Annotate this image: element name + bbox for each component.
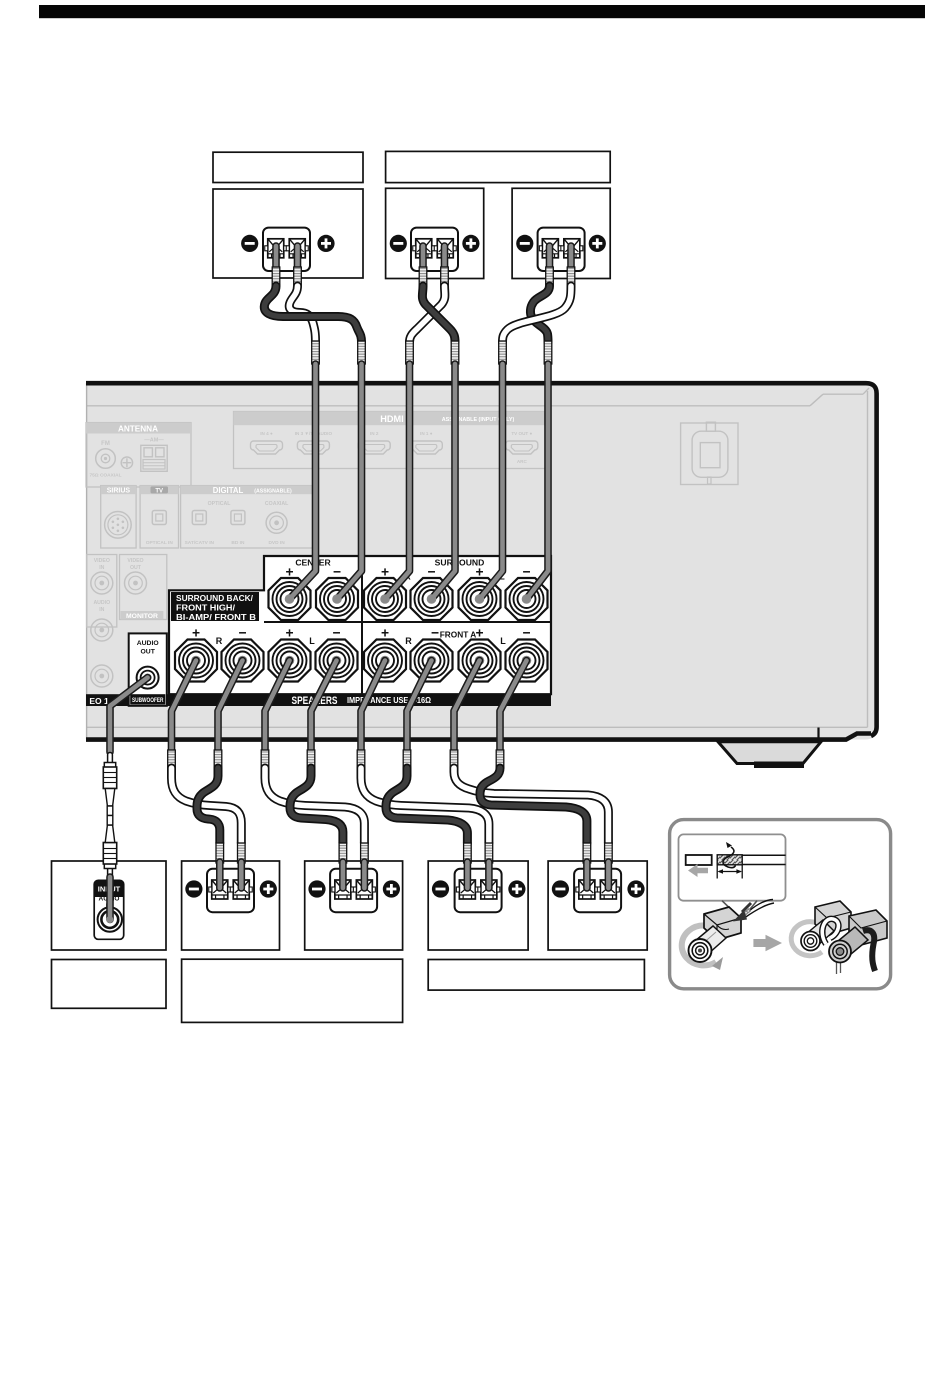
svg-text:+: + [381, 565, 389, 580]
svg-text:OUT: OUT [130, 565, 142, 571]
svg-text:IN: IN [99, 565, 104, 571]
svg-text:MONITOR: MONITOR [126, 613, 158, 620]
svg-text:IMPEDANCE USE 8-16Ω: IMPEDANCE USE 8-16Ω [347, 695, 431, 705]
svg-text:−: − [427, 565, 435, 580]
svg-text:R: R [405, 636, 412, 646]
svg-text:OPTICAL IN: OPTICAL IN [146, 540, 174, 546]
svg-text:VIDEO: VIDEO [94, 558, 110, 564]
svg-text:SUBWOOFER: SUBWOOFER [132, 697, 164, 704]
svg-text:AUDIO: AUDIO [137, 640, 159, 647]
svg-text:SAT/CATV IN: SAT/CATV IN [185, 540, 215, 546]
svg-text:IN 1 ●: IN 1 ● [420, 431, 433, 436]
svg-text:(ASSIGNABLE): (ASSIGNABLE) [254, 489, 292, 495]
svg-text:+: + [475, 626, 483, 641]
svg-text:+: + [381, 626, 389, 641]
svg-text:IN: IN [99, 607, 104, 613]
svg-text:TV OUT ●: TV OUT ● [511, 431, 532, 436]
svg-text:−: − [332, 626, 340, 641]
svg-text:HDMI: HDMI [380, 414, 403, 424]
svg-text:−: − [333, 565, 341, 580]
svg-text:SURROUND BACK/: SURROUND BACK/ [176, 594, 254, 603]
svg-text:IN 4 ●: IN 4 ● [260, 431, 273, 436]
svg-text:ARC: ARC [517, 459, 528, 464]
svg-text:75Ω COAXIAL: 75Ω COAXIAL [89, 473, 121, 479]
svg-text:DIGITAL: DIGITAL [213, 486, 244, 495]
svg-text:OPTICAL: OPTICAL [208, 501, 232, 507]
svg-text:R: R [216, 636, 223, 646]
svg-text:AUDIO: AUDIO [93, 600, 110, 606]
svg-text:EO 1: EO 1 [89, 696, 109, 706]
svg-text:−: − [238, 626, 246, 641]
svg-text:+: + [285, 626, 293, 641]
svg-text:IN 2: IN 2 [370, 431, 379, 436]
svg-text:VIDEO: VIDEO [127, 558, 143, 564]
svg-text:−: − [522, 626, 530, 641]
svg-text:COAXIAL: COAXIAL [265, 501, 289, 507]
svg-text:TV: TV [155, 489, 163, 495]
svg-text:DVD IN: DVD IN [268, 540, 285, 546]
svg-text:FRONT HIGH/: FRONT HIGH/ [176, 604, 236, 613]
svg-text:OUT: OUT [141, 649, 156, 656]
svg-text:L: L [500, 636, 506, 646]
svg-text:ANTENNA: ANTENNA [118, 425, 158, 434]
svg-text:FM: FM [101, 441, 110, 447]
svg-text:L: L [309, 636, 315, 646]
svg-text:−: − [522, 565, 530, 580]
svg-text:+: + [285, 565, 293, 580]
svg-text:FRONT A: FRONT A [440, 630, 477, 640]
svg-text:+: + [475, 565, 483, 580]
svg-text:—AM—: —AM— [144, 438, 164, 444]
svg-text:BD IN: BD IN [231, 540, 245, 546]
svg-text:BI-AMP/ FRONT B: BI-AMP/ FRONT B [176, 613, 256, 622]
svg-text:SIRIUS: SIRIUS [107, 488, 131, 495]
svg-text:−: − [431, 626, 439, 641]
svg-text:+: + [192, 626, 200, 641]
